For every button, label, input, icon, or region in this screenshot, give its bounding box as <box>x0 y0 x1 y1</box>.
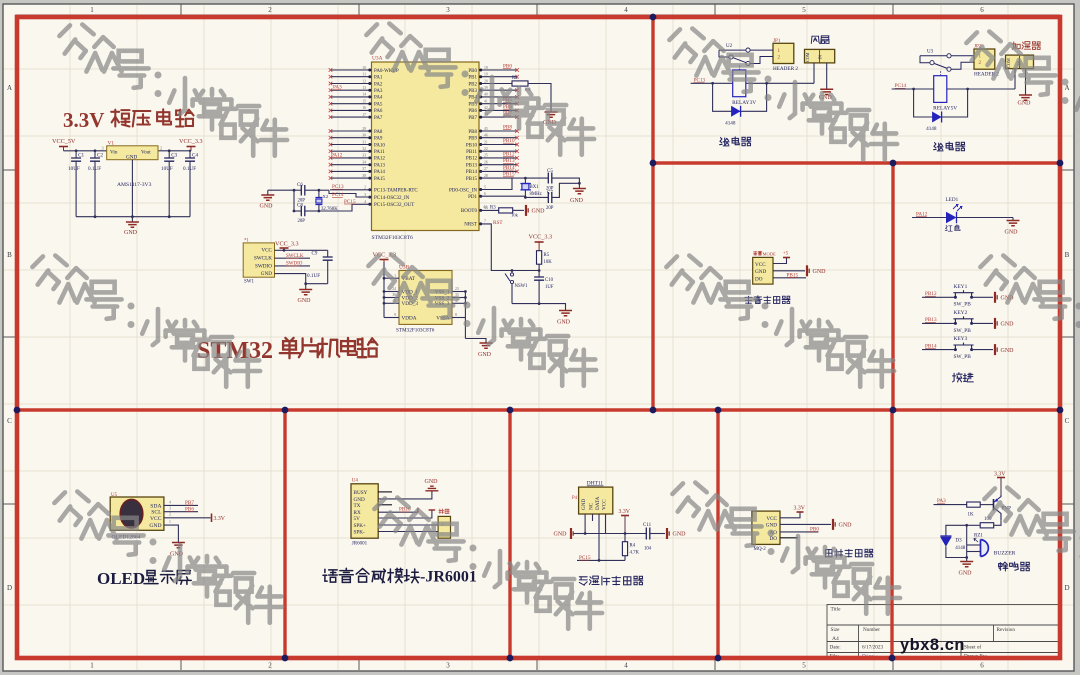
svg-text:29: 29 <box>362 127 366 131</box>
svg-text:PA8: PA8 <box>374 130 383 135</box>
svg-text:X2: X2 <box>323 194 329 199</box>
svg-text:44: 44 <box>483 205 487 209</box>
svg-text:VCC_3.3: VCC_3.3 <box>179 138 203 145</box>
svg-text:PC13-TAMPER-RTC: PC13-TAMPER-RTC <box>374 189 418 194</box>
svg-text:GND: GND <box>261 271 272 277</box>
svg-text:PB8: PB8 <box>468 130 477 135</box>
svg-text:RELAY5V: RELAY5V <box>933 106 957 112</box>
svg-text:MQ-2: MQ-2 <box>754 547 767 552</box>
svg-text:DO: DO <box>755 277 763 283</box>
svg-text:+5: +5 <box>783 252 789 257</box>
svg-text:Revision: Revision <box>997 627 1016 633</box>
svg-text:PB10: PB10 <box>466 143 478 148</box>
svg-text:-JR6001: -JR6001 <box>420 569 477 586</box>
svg-text:28: 28 <box>484 174 488 178</box>
svg-text:2: 2 <box>268 6 272 14</box>
svg-text:STM32F103C8T6: STM32F103C8T6 <box>396 328 435 334</box>
svg-text:VCC_5V: VCC_5V <box>52 138 76 145</box>
svg-text:PA6: PA6 <box>374 109 383 114</box>
svg-text:30: 30 <box>362 134 366 138</box>
svg-text:26: 26 <box>484 161 488 165</box>
svg-text:SWDIO: SWDIO <box>255 263 272 269</box>
svg-text:4: 4 <box>169 500 171 504</box>
svg-text:Number: Number <box>863 627 880 633</box>
svg-text:VCC: VCC <box>150 516 162 522</box>
svg-text:PB0: PB0 <box>468 69 477 74</box>
svg-text:PB14: PB14 <box>466 170 478 175</box>
svg-text:D3: D3 <box>956 539 963 544</box>
svg-text:R4: R4 <box>630 544 636 549</box>
svg-text:VCC: VCC <box>602 499 608 510</box>
svg-text:25: 25 <box>484 154 488 158</box>
svg-text:B: B <box>7 251 12 259</box>
svg-text:DO: DO <box>770 536 778 542</box>
svg-text:PA10: PA10 <box>374 143 385 148</box>
svg-text:VCC: VCC <box>755 262 766 268</box>
svg-text:VDDA: VDDA <box>402 315 417 321</box>
svg-text:A: A <box>7 84 12 92</box>
svg-text:1: 1 <box>90 662 94 670</box>
svg-text:20: 20 <box>484 79 488 83</box>
svg-text:45: 45 <box>484 127 488 131</box>
svg-text:46: 46 <box>484 134 488 138</box>
svg-text:C: C <box>7 417 12 425</box>
svg-text:TX: TX <box>354 503 361 509</box>
svg-text:VCC: VCC <box>766 516 777 522</box>
svg-text:20P: 20P <box>298 219 306 224</box>
svg-text:STM32F103C8T6: STM32F103C8T6 <box>372 235 414 241</box>
svg-text:SW_PB: SW_PB <box>954 354 972 360</box>
svg-text:27: 27 <box>484 167 488 171</box>
svg-text:GND: GND <box>124 230 138 236</box>
svg-text:3: 3 <box>446 662 450 670</box>
svg-text:NSW1: NSW1 <box>515 284 529 289</box>
svg-text:BUZZER: BUZZER <box>994 551 1016 557</box>
svg-text:6/17/2023: 6/17/2023 <box>862 645 883 651</box>
svg-text:Title: Title <box>831 607 842 613</box>
svg-text:PC14-OSC32_IN: PC14-OSC32_IN <box>374 196 410 201</box>
svg-text:BUSY: BUSY <box>354 490 368 496</box>
svg-text:DATA: DATA <box>595 496 601 510</box>
svg-text:BOOT0: BOOT0 <box>461 209 478 214</box>
svg-text:GND: GND <box>532 209 546 215</box>
svg-text:11: 11 <box>362 73 366 77</box>
svg-text:NC: NC <box>589 502 595 510</box>
svg-text:PB11: PB11 <box>466 150 477 155</box>
svg-text:GND: GND <box>478 352 492 358</box>
svg-text:GND: GND <box>755 269 766 275</box>
svg-text:Sheet of: Sheet of <box>964 644 981 651</box>
svg-text:GND: GND <box>766 522 777 528</box>
svg-text:GND: GND <box>557 320 571 326</box>
svg-text:C3: C3 <box>171 153 177 159</box>
svg-text:PB12: PB12 <box>466 157 478 162</box>
svg-text:3: 3 <box>169 507 171 511</box>
svg-text:VCC: VCC <box>261 248 272 254</box>
svg-text:SWCLK: SWCLK <box>254 256 272 262</box>
svg-text:PA7: PA7 <box>374 116 383 121</box>
svg-text:4: 4 <box>624 662 628 670</box>
svg-text:3: 3 <box>364 193 366 197</box>
svg-text:6: 6 <box>980 662 984 670</box>
svg-text:RELAY3V: RELAY3V <box>732 100 756 106</box>
svg-text:5: 5 <box>484 185 486 189</box>
svg-text:2: 2 <box>364 186 366 190</box>
svg-text:40: 40 <box>484 93 488 97</box>
svg-text:MODE: MODE <box>763 252 777 257</box>
svg-text:C2: C2 <box>97 153 103 159</box>
svg-text:GND: GND <box>1001 322 1015 328</box>
svg-text:PA9: PA9 <box>374 137 383 142</box>
svg-text:C: C <box>1065 417 1070 425</box>
svg-text:COM: COM <box>805 52 810 62</box>
svg-text:GND: GND <box>260 204 274 210</box>
svg-text:C8: C8 <box>297 204 303 209</box>
svg-text:GND: GND <box>425 479 439 485</box>
svg-text:Vin: Vin <box>110 150 118 156</box>
svg-text:C6: C6 <box>297 183 303 188</box>
svg-text:D: D <box>1064 584 1069 592</box>
svg-text:GND: GND <box>149 523 161 529</box>
svg-text:VCC_3.3: VCC_3.3 <box>529 234 553 241</box>
svg-text:SW_PB: SW_PB <box>954 328 972 334</box>
svg-text:U2: U2 <box>726 44 733 49</box>
svg-text:39: 39 <box>484 86 488 90</box>
svg-text:8MHz: 8MHz <box>530 192 542 197</box>
svg-text:GND: GND <box>959 571 973 577</box>
svg-text:14: 14 <box>362 93 366 97</box>
svg-text:4: 4 <box>624 6 628 14</box>
svg-text:U4: U4 <box>352 479 359 484</box>
svg-text:33: 33 <box>362 154 366 158</box>
svg-text:PD0-OSC_IN: PD0-OSC_IN <box>449 188 477 193</box>
svg-text:GND: GND <box>554 532 568 538</box>
svg-text:ybx8.cn: ybx8.cn <box>900 636 965 654</box>
svg-text:4: 4 <box>364 200 366 204</box>
svg-text:3.3V: 3.3V <box>619 509 631 515</box>
svg-text:Vout: Vout <box>141 150 151 156</box>
svg-text:6: 6 <box>484 192 486 196</box>
svg-text:0.1UF: 0.1UF <box>307 273 320 279</box>
svg-text:VCC_3.3: VCC_3.3 <box>275 241 299 248</box>
svg-text:3.3V: 3.3V <box>994 472 1006 478</box>
svg-text:23: 23 <box>455 287 459 291</box>
svg-text:2: 2 <box>160 146 162 151</box>
svg-text:PC15-OSC32_OUT: PC15-OSC32_OUT <box>374 203 414 208</box>
svg-text:18: 18 <box>484 66 488 70</box>
svg-text:VDD_3: VDD_3 <box>402 301 419 307</box>
svg-text:NRST: NRST <box>464 223 477 228</box>
svg-text:32: 32 <box>362 147 366 151</box>
svg-text:41: 41 <box>484 100 488 104</box>
svg-text:10UF: 10UF <box>68 166 80 172</box>
svg-text:B: B <box>1065 251 1070 259</box>
svg-text:BX1: BX1 <box>530 185 540 190</box>
svg-text:PA12: PA12 <box>374 157 385 162</box>
svg-text:OLED: OLED <box>97 569 145 588</box>
svg-text:GND: GND <box>839 523 853 529</box>
svg-text:4148: 4148 <box>725 120 736 126</box>
svg-text:4148: 4148 <box>955 546 966 551</box>
svg-text:13: 13 <box>362 86 366 90</box>
svg-text:GND: GND <box>126 155 137 161</box>
svg-text:P4: P4 <box>572 496 578 501</box>
svg-text:GND: GND <box>298 298 312 304</box>
svg-text:C1: C1 <box>78 153 84 159</box>
svg-text:KEY1: KEY1 <box>954 284 968 290</box>
svg-text:IN: IN <box>818 55 823 59</box>
svg-text:SW_PB: SW_PB <box>954 302 972 308</box>
svg-text:GND: GND <box>1018 101 1032 107</box>
svg-text:PA14: PA14 <box>374 170 385 175</box>
svg-text:R1: R1 <box>512 76 518 81</box>
svg-text:PB7: PB7 <box>468 116 477 121</box>
svg-text:3: 3 <box>102 146 104 151</box>
svg-text:4.7K: 4.7K <box>630 551 640 556</box>
svg-text:GND: GND <box>570 198 584 204</box>
svg-text:5: 5 <box>802 6 806 14</box>
svg-text:Size: Size <box>831 627 841 633</box>
svg-text:6: 6 <box>980 6 984 14</box>
svg-text:9: 9 <box>394 313 396 317</box>
svg-text:1: 1 <box>394 274 396 278</box>
svg-text:37: 37 <box>362 167 366 171</box>
svg-text:SDA: SDA <box>150 503 161 509</box>
svg-text:19: 19 <box>484 73 488 77</box>
svg-text:5V: 5V <box>354 516 361 522</box>
svg-text:10: 10 <box>362 66 366 70</box>
svg-text:GND: GND <box>813 269 827 275</box>
svg-text:RST: RST <box>493 220 503 226</box>
svg-text:GND: GND <box>1001 348 1015 354</box>
svg-text:31: 31 <box>362 140 366 144</box>
svg-text:1UF: 1UF <box>545 285 554 290</box>
svg-text:17: 17 <box>362 113 366 117</box>
svg-text:4148: 4148 <box>926 126 937 132</box>
svg-text:PB1: PB1 <box>468 76 477 81</box>
svg-text:3.3V: 3.3V <box>63 108 104 132</box>
svg-text:24: 24 <box>392 287 396 291</box>
svg-text:20P: 20P <box>546 206 554 211</box>
svg-text:PB3: PB3 <box>468 89 477 94</box>
svg-text:Date:: Date: <box>830 645 842 651</box>
svg-text:U3: U3 <box>927 50 934 55</box>
svg-text:10UF: 10UF <box>161 166 173 172</box>
svg-text:SPK-: SPK- <box>354 530 366 536</box>
svg-text:D: D <box>7 584 12 592</box>
svg-text:RZ1: RZ1 <box>974 534 983 539</box>
svg-text:2: 2 <box>169 513 171 517</box>
svg-text:PA13: PA13 <box>374 164 385 169</box>
svg-text:PA11: PA11 <box>374 150 385 155</box>
svg-text:10K: 10K <box>544 260 553 265</box>
svg-text:5: 5 <box>802 662 806 670</box>
svg-text:16: 16 <box>362 106 366 110</box>
svg-text:1: 1 <box>169 520 171 524</box>
svg-text:GND: GND <box>1005 230 1019 236</box>
svg-text:1: 1 <box>90 6 94 14</box>
svg-text:34: 34 <box>362 161 366 165</box>
svg-text:22: 22 <box>484 147 488 151</box>
svg-text:JR6001: JR6001 <box>352 542 368 547</box>
svg-text:C10: C10 <box>545 278 554 283</box>
svg-text:3: 3 <box>446 6 450 14</box>
svg-text:0.1UF: 0.1UF <box>183 166 196 172</box>
svg-text:PA5: PA5 <box>374 103 383 108</box>
svg-text:KEY3: KEY3 <box>954 336 968 342</box>
svg-text:U3A: U3A <box>372 56 383 62</box>
svg-text:C11: C11 <box>643 523 652 528</box>
svg-text:PB2: PB2 <box>468 82 477 87</box>
svg-text:HEADER 2: HEADER 2 <box>773 66 798 72</box>
svg-text:GND: GND <box>673 532 687 538</box>
svg-text:1K: 1K <box>968 513 975 518</box>
svg-text:PA4: PA4 <box>374 96 383 101</box>
svg-text:C4: C4 <box>192 153 198 159</box>
svg-text:PD1: PD1 <box>468 195 477 200</box>
svg-text:PB6: PB6 <box>468 109 477 114</box>
svg-text:7: 7 <box>484 220 486 224</box>
svg-text:104: 104 <box>644 547 652 552</box>
svg-text:PB9: PB9 <box>468 137 477 142</box>
svg-text:8: 8 <box>455 313 457 317</box>
svg-text:3.3V: 3.3V <box>794 506 806 512</box>
svg-text:PB13: PB13 <box>466 164 478 169</box>
svg-text:10k: 10k <box>511 213 519 218</box>
svg-text:38: 38 <box>362 174 366 178</box>
svg-text:15: 15 <box>362 100 366 104</box>
svg-text:12: 12 <box>362 79 366 83</box>
svg-text:AMS1117-3V3: AMS1117-3V3 <box>117 182 152 188</box>
svg-text:PA1: PA1 <box>374 76 383 81</box>
svg-text:PA2: PA2 <box>374 82 383 87</box>
svg-text:PA3: PA3 <box>374 89 383 94</box>
svg-text:R5: R5 <box>544 253 550 258</box>
svg-text:R3: R3 <box>490 206 496 211</box>
svg-text:3.3V: 3.3V <box>214 516 226 522</box>
svg-text:KEY2: KEY2 <box>954 310 968 316</box>
svg-text:SW1: SW1 <box>244 280 255 285</box>
svg-text:A4: A4 <box>832 636 839 642</box>
svg-text:SCL: SCL <box>151 510 162 516</box>
svg-text:PB15: PB15 <box>466 177 478 182</box>
svg-text:LED1: LED1 <box>946 197 959 203</box>
svg-text:PA15: PA15 <box>374 177 385 182</box>
svg-text:0.1UF: 0.1UF <box>88 166 101 172</box>
svg-text:21: 21 <box>484 140 488 144</box>
svg-text:GND: GND <box>581 499 587 510</box>
svg-text:2: 2 <box>268 662 272 670</box>
svg-text:C9: C9 <box>312 252 318 257</box>
svg-text:SPK+: SPK+ <box>354 523 367 529</box>
